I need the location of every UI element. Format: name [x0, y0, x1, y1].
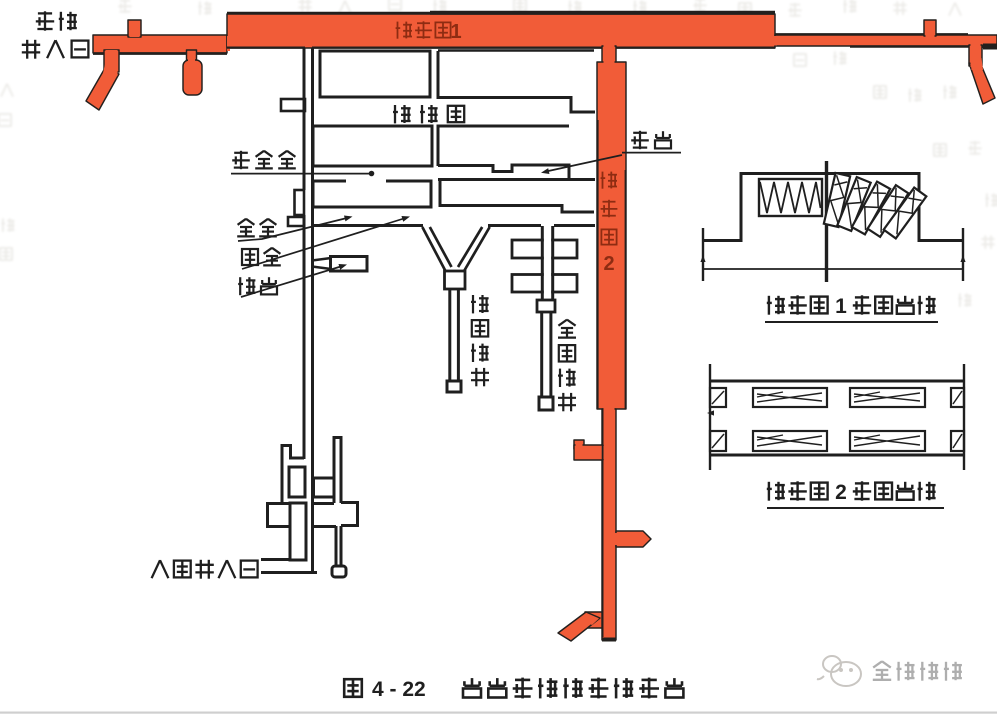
svg-text:1: 1 — [835, 295, 847, 318]
svg-text:1: 1 — [450, 21, 461, 43]
svg-text:2: 2 — [835, 481, 847, 504]
svg-text:2: 2 — [603, 253, 614, 275]
svg-text:4 - 22: 4 - 22 — [372, 678, 426, 701]
